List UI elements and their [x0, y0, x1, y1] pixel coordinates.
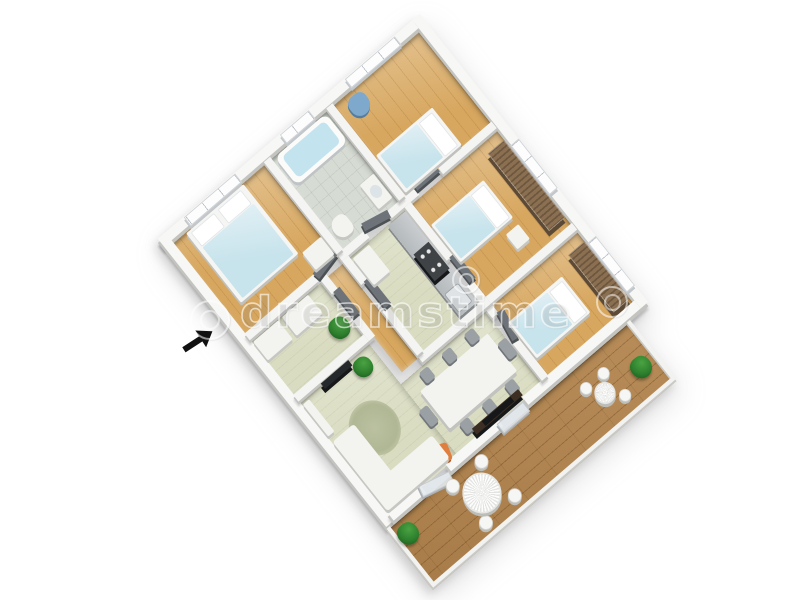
- apartment-floorplan-3d: [158, 18, 695, 590]
- floorplan-shadow-wrap: [0, 0, 800, 600]
- stock-photo-canvas: dreamstime: [0, 0, 800, 600]
- basin-bowl: [367, 182, 384, 200]
